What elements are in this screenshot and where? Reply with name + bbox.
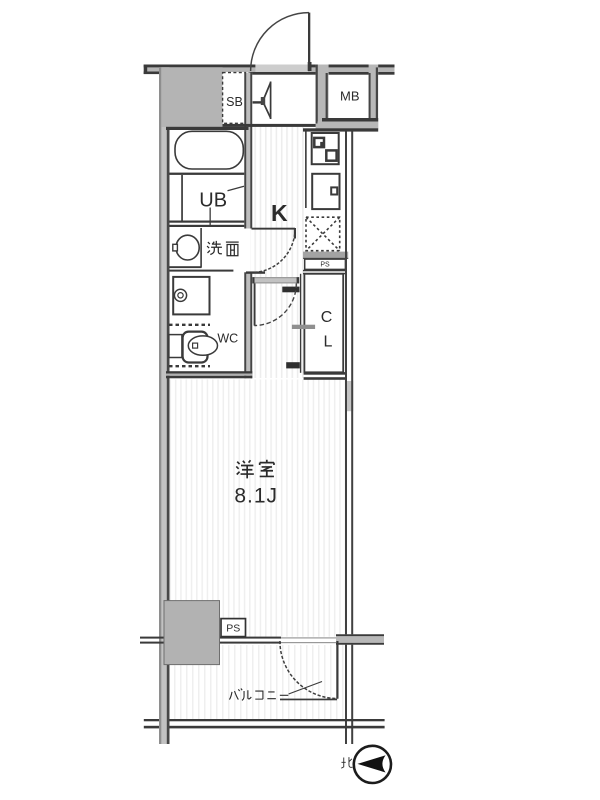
svg-text:PS: PS [320,262,330,269]
svg-text:SB: SB [226,95,243,109]
svg-text:UB: UB [199,190,227,212]
svg-text:K: K [271,200,288,226]
svg-text:PS: PS [226,623,240,635]
svg-text:C: C [321,309,333,326]
svg-text:MB: MB [340,89,360,104]
svg-text:8.1J: 8.1J [234,485,278,508]
svg-text:WC: WC [217,332,238,346]
svg-text:L: L [324,334,333,351]
